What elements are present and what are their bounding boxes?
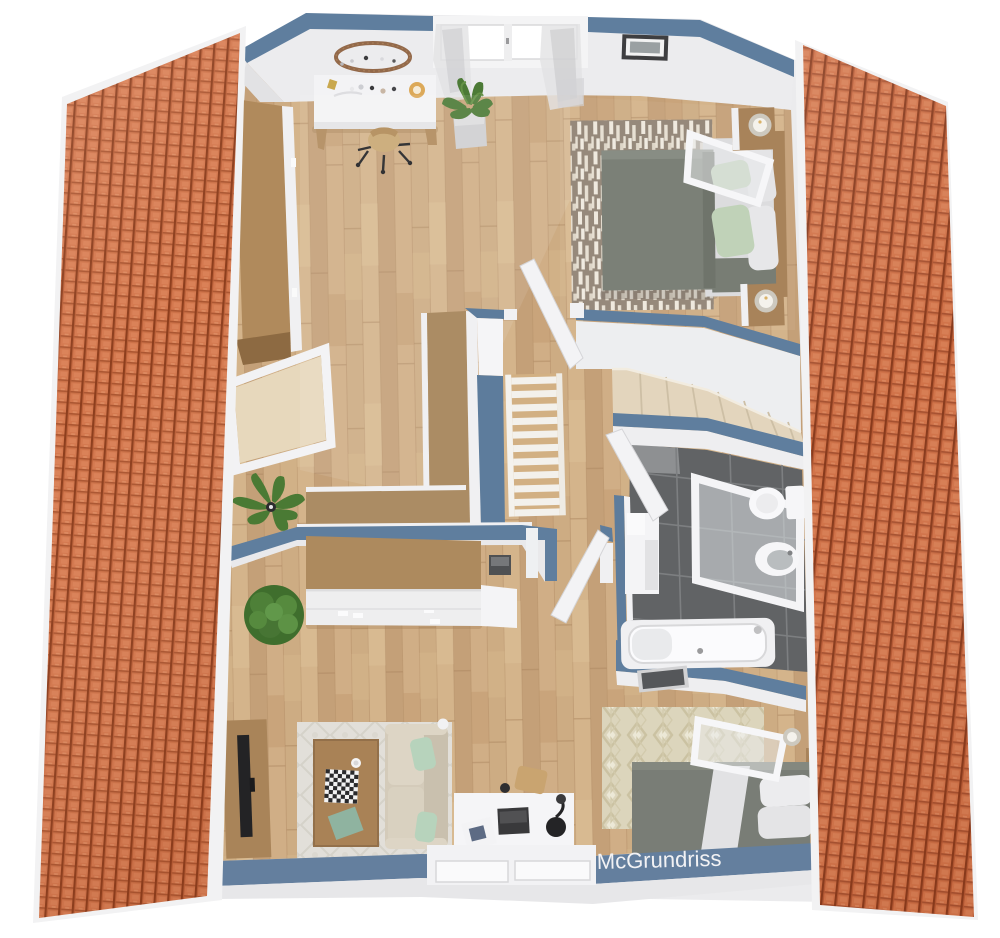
svg-text:McGrundriss: McGrundriss xyxy=(596,846,721,874)
